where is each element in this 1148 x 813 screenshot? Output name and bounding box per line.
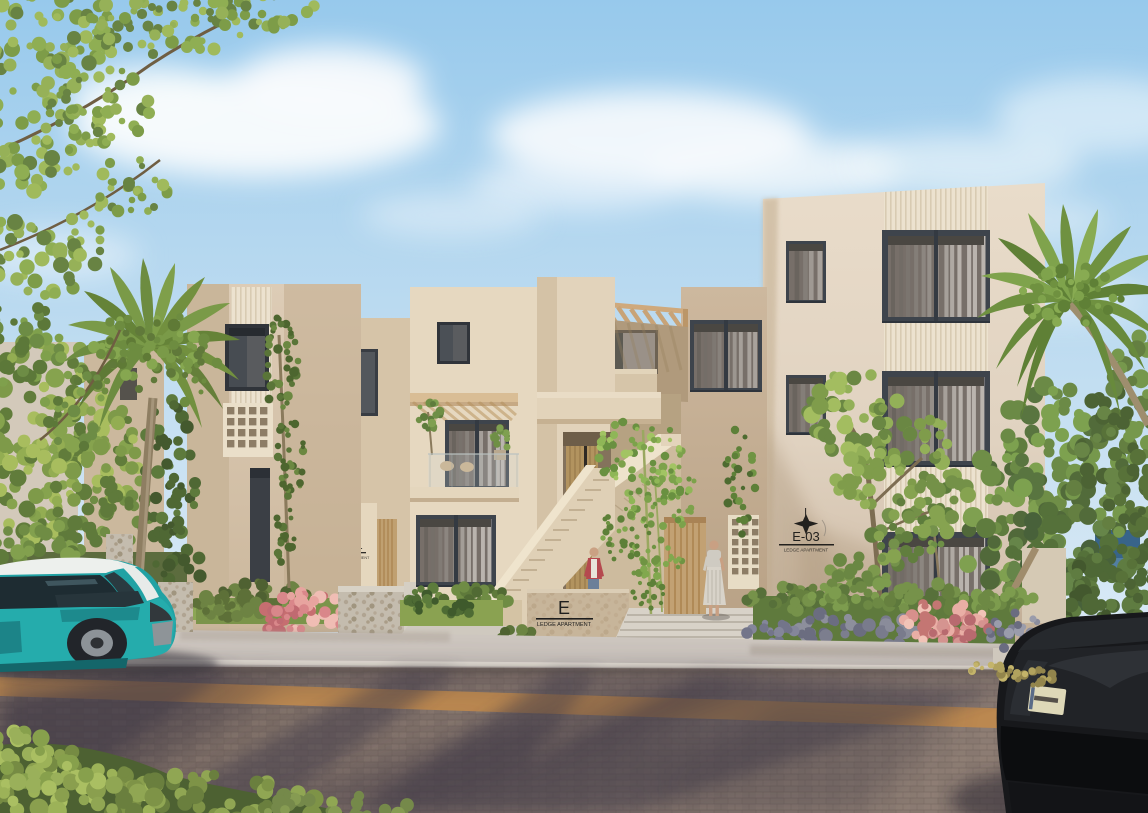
svg-text:E-03: E-03 [792,529,819,544]
svg-text:LEDGE APARTMENT: LEDGE APARTMENT [784,548,829,553]
svg-text:E: E [558,598,570,618]
svg-text:LEDGE APARTMENT: LEDGE APARTMENT [537,622,592,628]
